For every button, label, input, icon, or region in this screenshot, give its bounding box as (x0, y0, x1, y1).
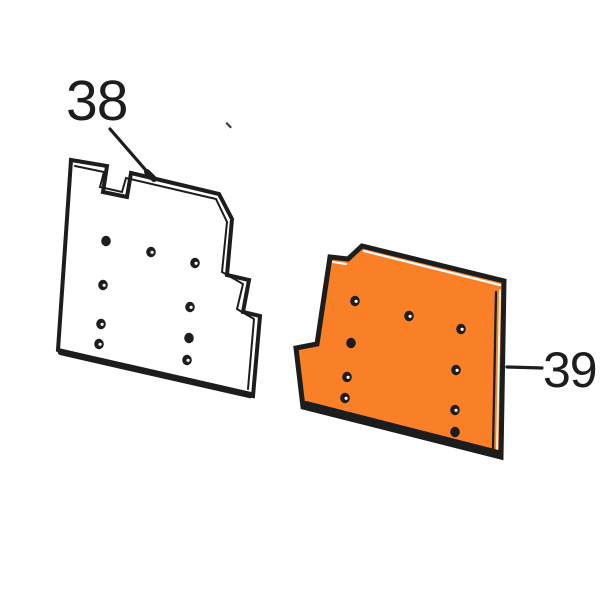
panel-39-hole-gap-2 (409, 315, 412, 318)
leader-line-38 (110, 129, 150, 175)
part-label-38: 38 (66, 73, 127, 130)
panel-38-hole-1 (101, 236, 111, 246)
stray-mark (225, 122, 232, 129)
panel-39-hole-gap-7 (455, 409, 458, 412)
panel-39-hole-gap-8 (345, 397, 348, 400)
panel-38-hole-gap-4 (103, 284, 106, 287)
panel-38-hole-gap-7 (99, 343, 102, 346)
leader-line-39 (507, 367, 542, 368)
part-label-39: 39 (543, 345, 597, 395)
panel-38-hole-8 (184, 333, 194, 343)
panel-39 (296, 246, 504, 457)
panel-39-hole-4 (346, 338, 356, 348)
panel-39-hole-gap-5 (456, 369, 459, 372)
parts-diagram: 38 39 (0, 0, 600, 600)
panel-38-hole-gap-6 (101, 323, 104, 326)
panel-38-hole-gap-2 (151, 251, 154, 254)
panel-39-hole-gap-3 (461, 328, 464, 331)
panel-39-hole-gap-6 (347, 376, 350, 379)
panel-38-hole-gap-5 (190, 306, 193, 309)
panel-39-hole-gap-1 (355, 300, 358, 303)
panel-38-hole-gap-9 (187, 359, 190, 362)
panel-39-hole-9 (450, 427, 460, 437)
panel-38 (58, 160, 260, 396)
panel-38-hole-gap-3 (195, 262, 198, 265)
